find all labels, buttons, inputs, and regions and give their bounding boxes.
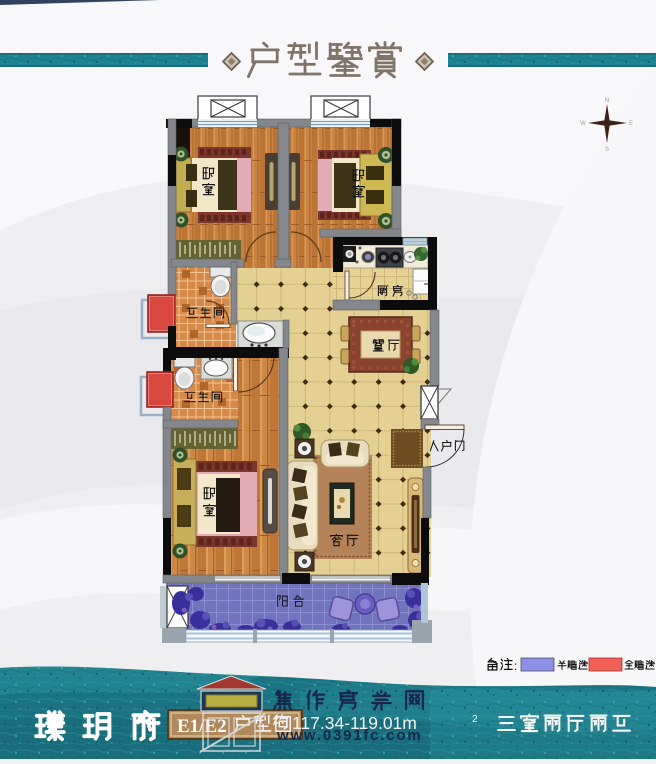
svg-text:E1/E2: E1/E2 [177,716,227,737]
svg-text:2: 2 [472,714,478,725]
svg-text:W: W [580,121,586,127]
svg-text::: : [514,659,517,673]
svg-text:S: S [605,147,609,153]
svg-text:117.34-119.01m: 117.34-119.01m [292,713,417,733]
svg-text:E: E [629,121,633,127]
svg-text:N: N [605,98,609,104]
